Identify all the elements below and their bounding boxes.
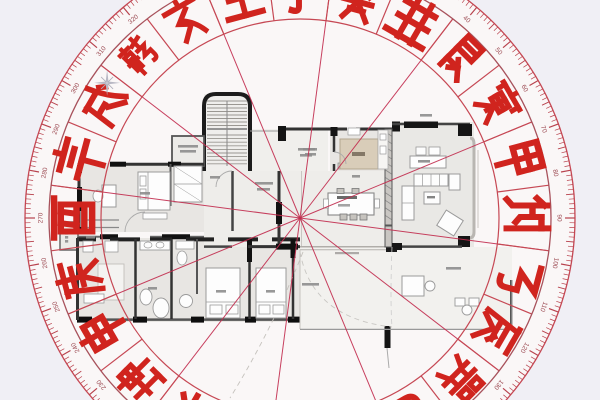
svg-text:270: 270	[38, 212, 45, 223]
svg-text:90: 90	[556, 214, 563, 222]
